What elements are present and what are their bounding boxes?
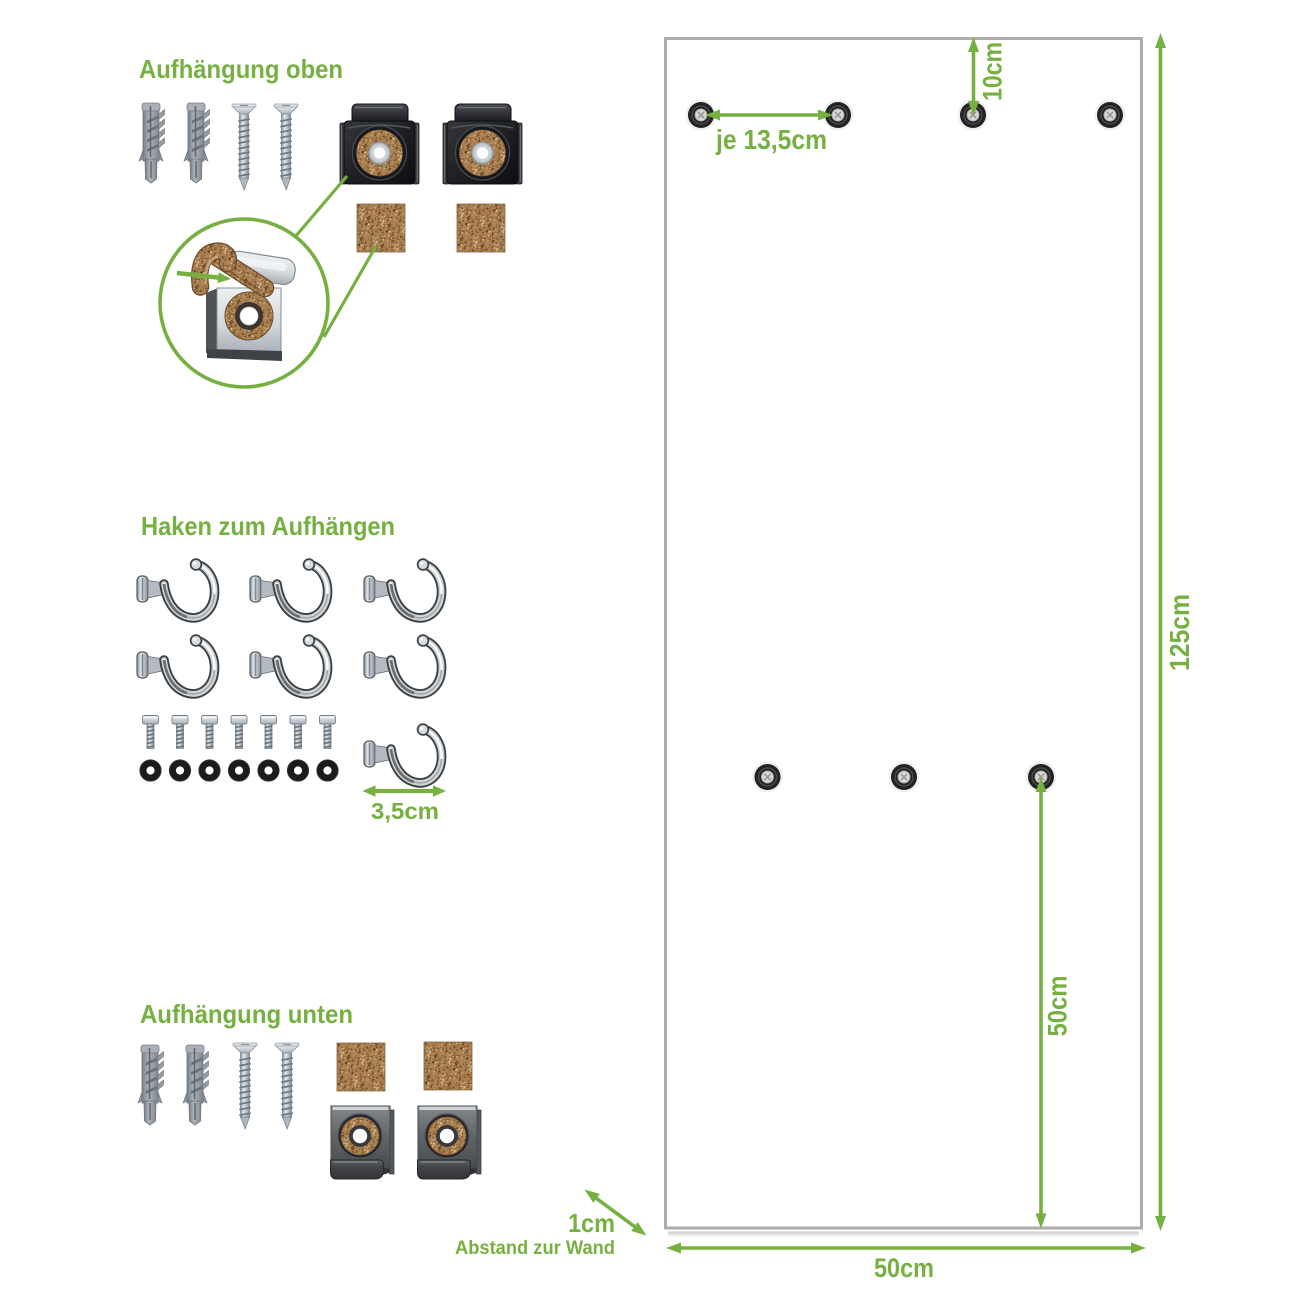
svg-text:Aufhängung oben: Aufhängung oben [139,54,343,84]
svg-text:Abstand zur Wand: Abstand zur Wand [455,1238,615,1259]
svg-text:1cm: 1cm [568,1208,615,1238]
svg-text:Aufhängung unten: Aufhängung unten [140,999,353,1029]
svg-text:je 13,5cm: je 13,5cm [715,124,827,155]
svg-text:10cm: 10cm [978,42,1008,101]
svg-text:125cm: 125cm [1164,594,1195,671]
svg-text:Haken zum Aufhängen: Haken zum Aufhängen [141,511,395,541]
svg-text:3,5cm: 3,5cm [371,798,439,824]
svg-text:50cm: 50cm [874,1253,934,1283]
svg-text:50cm: 50cm [1043,976,1073,1037]
